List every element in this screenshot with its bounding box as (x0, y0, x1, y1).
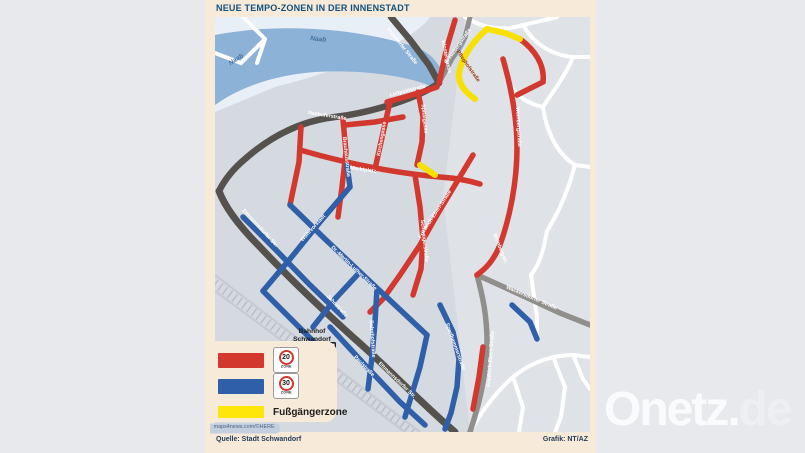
station-label: Bahnhof (299, 328, 327, 335)
legend-row: Fußgängerzone (218, 399, 329, 425)
legend-row: 30ZONE (218, 373, 329, 399)
legend-swatch (218, 406, 264, 418)
logo-main: Onetz. (604, 383, 739, 436)
speed-limit-circle: 20 (279, 350, 294, 365)
pedestrian-zone-label: Fußgängerzone (273, 407, 347, 418)
speed-limit-circle: 30 (279, 376, 294, 391)
onetz-logo[interactable]: Onetz.de (604, 386, 791, 434)
speed-zone-sign-20: 20ZONE (273, 347, 299, 373)
legend-row: 20ZONE (218, 347, 329, 373)
logo-suffix: de (739, 383, 791, 436)
page-title: NEUE TEMPO-ZONEN IN DER INNENSTADT (216, 3, 586, 13)
speed-zone-sign-30: 30ZONE (273, 373, 299, 399)
zone-word: ZONE (281, 365, 292, 368)
legend-swatch (218, 379, 264, 394)
page-bg: { "header": { "title": "NEUE TEMPO-ZONEN… (0, 0, 805, 453)
source-credit: Quelle: Stadt Schwandorf (216, 436, 301, 443)
legend-panel: 20ZONE30ZONEFußgängerzone (206, 341, 337, 422)
legend-swatch (218, 353, 264, 368)
outer-district (443, 17, 590, 432)
legend-rows: 20ZONE30ZONEFußgängerzone (218, 347, 329, 425)
graphic-credit: Grafik: NT/AZ (460, 436, 588, 443)
zone-word: ZONE (281, 391, 292, 394)
map-watermark: maps4news.com/©HERE (210, 424, 280, 434)
